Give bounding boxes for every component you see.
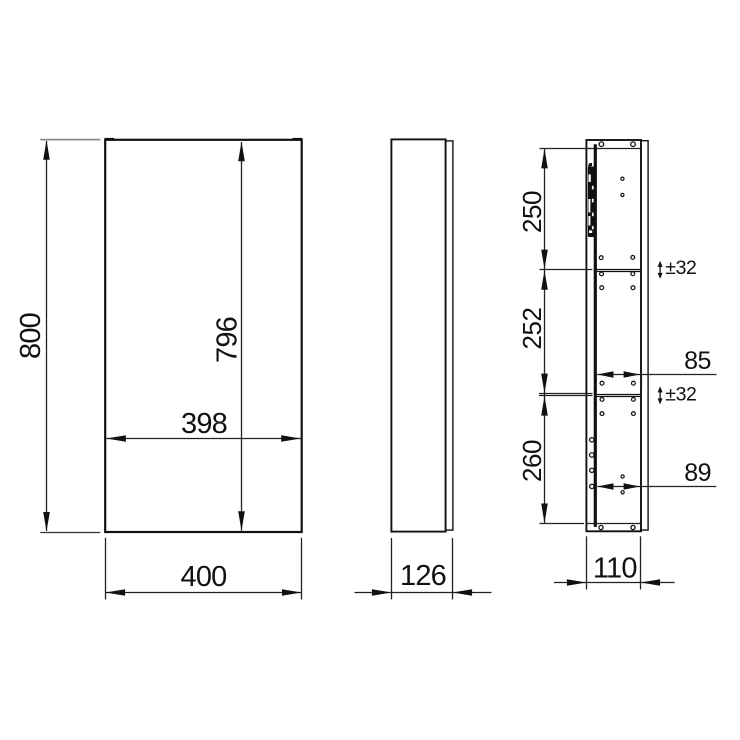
svg-text:252: 252 xyxy=(517,308,547,350)
svg-text:89: 89 xyxy=(684,459,711,487)
svg-text:±32: ±32 xyxy=(665,257,696,279)
svg-text:400: 400 xyxy=(181,561,227,593)
svg-text:110: 110 xyxy=(593,552,637,584)
svg-text:126: 126 xyxy=(400,560,446,592)
svg-text:250: 250 xyxy=(517,191,547,233)
svg-text:±32: ±32 xyxy=(665,384,696,406)
svg-text:800: 800 xyxy=(15,313,47,359)
svg-text:796: 796 xyxy=(212,317,244,363)
svg-text:398: 398 xyxy=(181,408,227,440)
svg-text:85: 85 xyxy=(684,347,711,375)
svg-text:260: 260 xyxy=(517,440,547,482)
